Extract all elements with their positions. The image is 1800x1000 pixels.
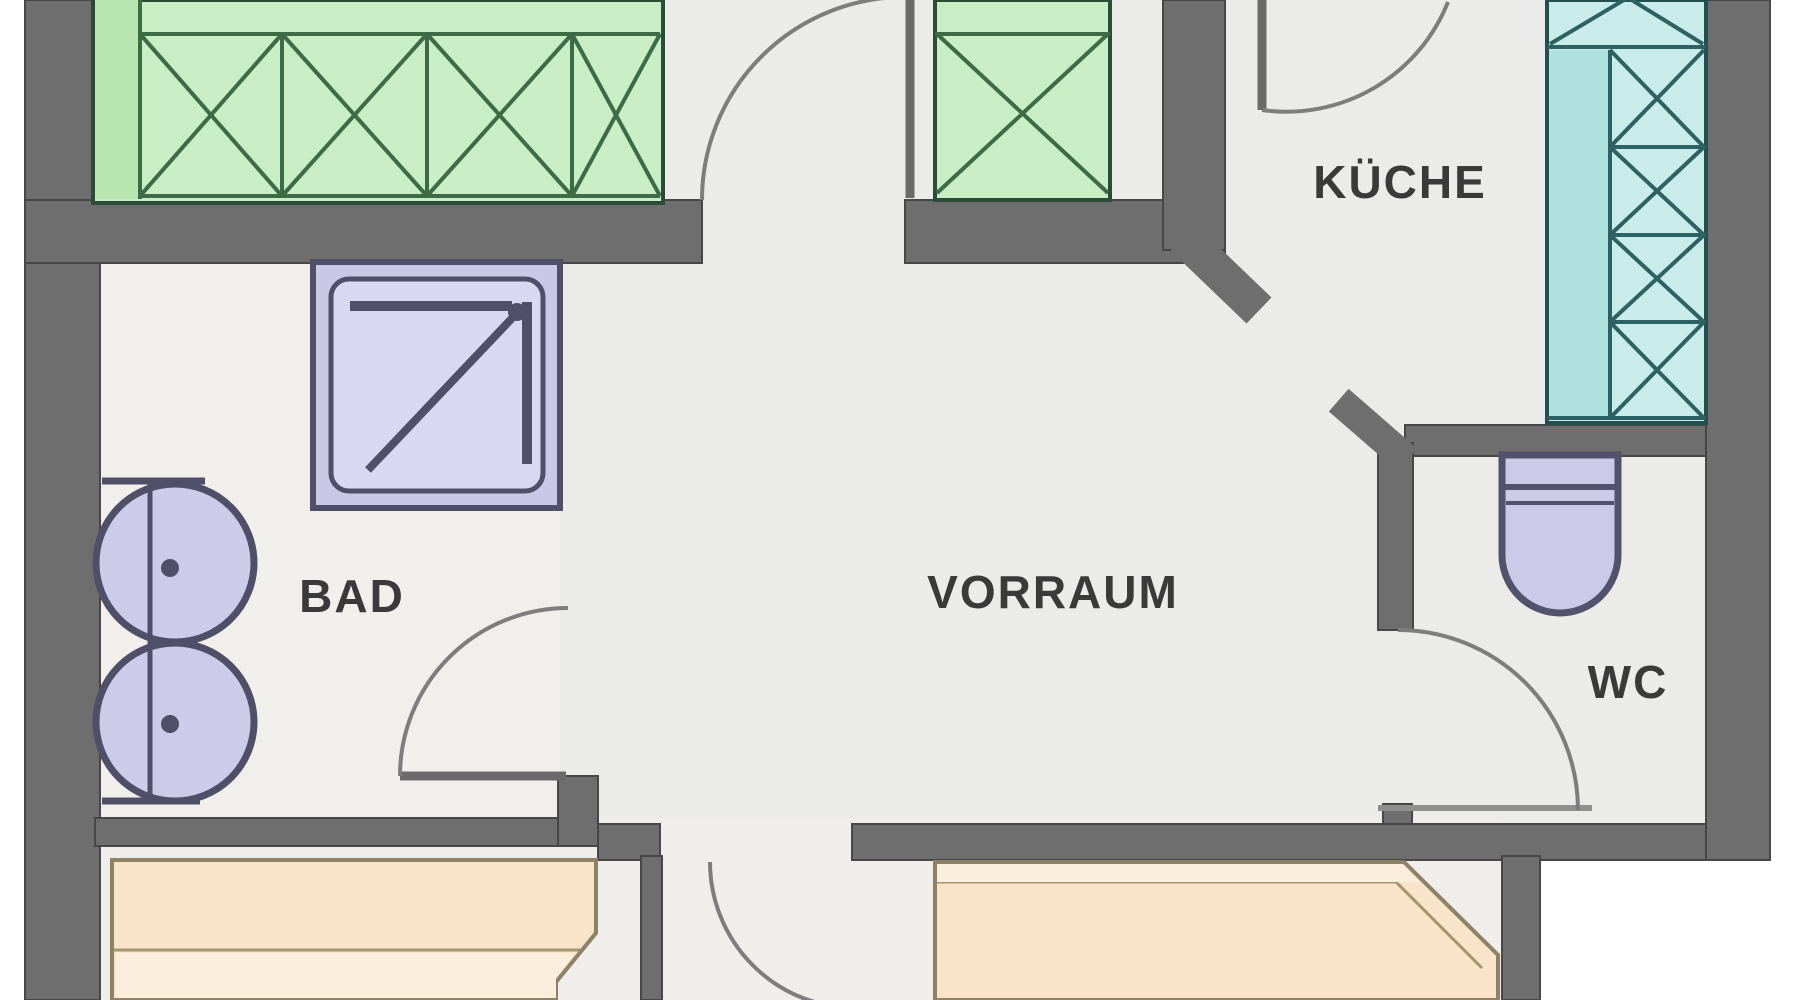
wall-kueche-vertical: [1163, 0, 1225, 250]
room-label-vorraum: VORRAUM: [927, 566, 1179, 618]
wardrobe-row-body: [93, 0, 663, 203]
toilet-body: [1502, 455, 1618, 613]
bed-left-lower-part: [116, 953, 575, 998]
wall-bedroom-divider: [641, 856, 662, 1000]
room-label-wc: WC: [1588, 656, 1669, 708]
basin-drain-dot: [161, 559, 179, 577]
bed-right: [935, 862, 1498, 1000]
wall-right-outer: [1706, 0, 1770, 860]
wall-right-lower: [1502, 856, 1540, 1000]
toilet: [1502, 455, 1618, 613]
wall-wc-top: [1405, 425, 1706, 456]
shower: [313, 262, 560, 508]
room-label-kueche: KÜCHE: [1313, 156, 1487, 208]
wardrobe-row-left-strip: [95, 0, 140, 199]
floor-plan: KÜCHE VORRAUM BAD WC: [0, 0, 1800, 1000]
wall-top-left: [25, 200, 702, 263]
wall-bad-bottom: [95, 818, 570, 846]
basin-drain-dot: [161, 715, 179, 733]
shower-head-dot: [508, 303, 526, 321]
bed-right-head-band: [937, 864, 1420, 882]
wall-bottom-right: [852, 824, 1706, 860]
wall-bad-door-stub: [558, 776, 598, 846]
wardrobe-single: [935, 0, 1110, 200]
wall-left-outer: [25, 0, 100, 1000]
kitchen-counter-strip: [1549, 50, 1610, 418]
wall-bottom-middle-left: [598, 824, 660, 860]
room-label-bad: BAD: [299, 570, 405, 622]
kitchen-counter: [1547, 0, 1706, 423]
bed-left: [112, 860, 596, 1000]
wardrobe-row: [93, 0, 663, 203]
wall-wc-left: [1378, 443, 1413, 630]
floor-plan-svg: KÜCHE VORRAUM BAD WC: [0, 0, 1800, 1000]
